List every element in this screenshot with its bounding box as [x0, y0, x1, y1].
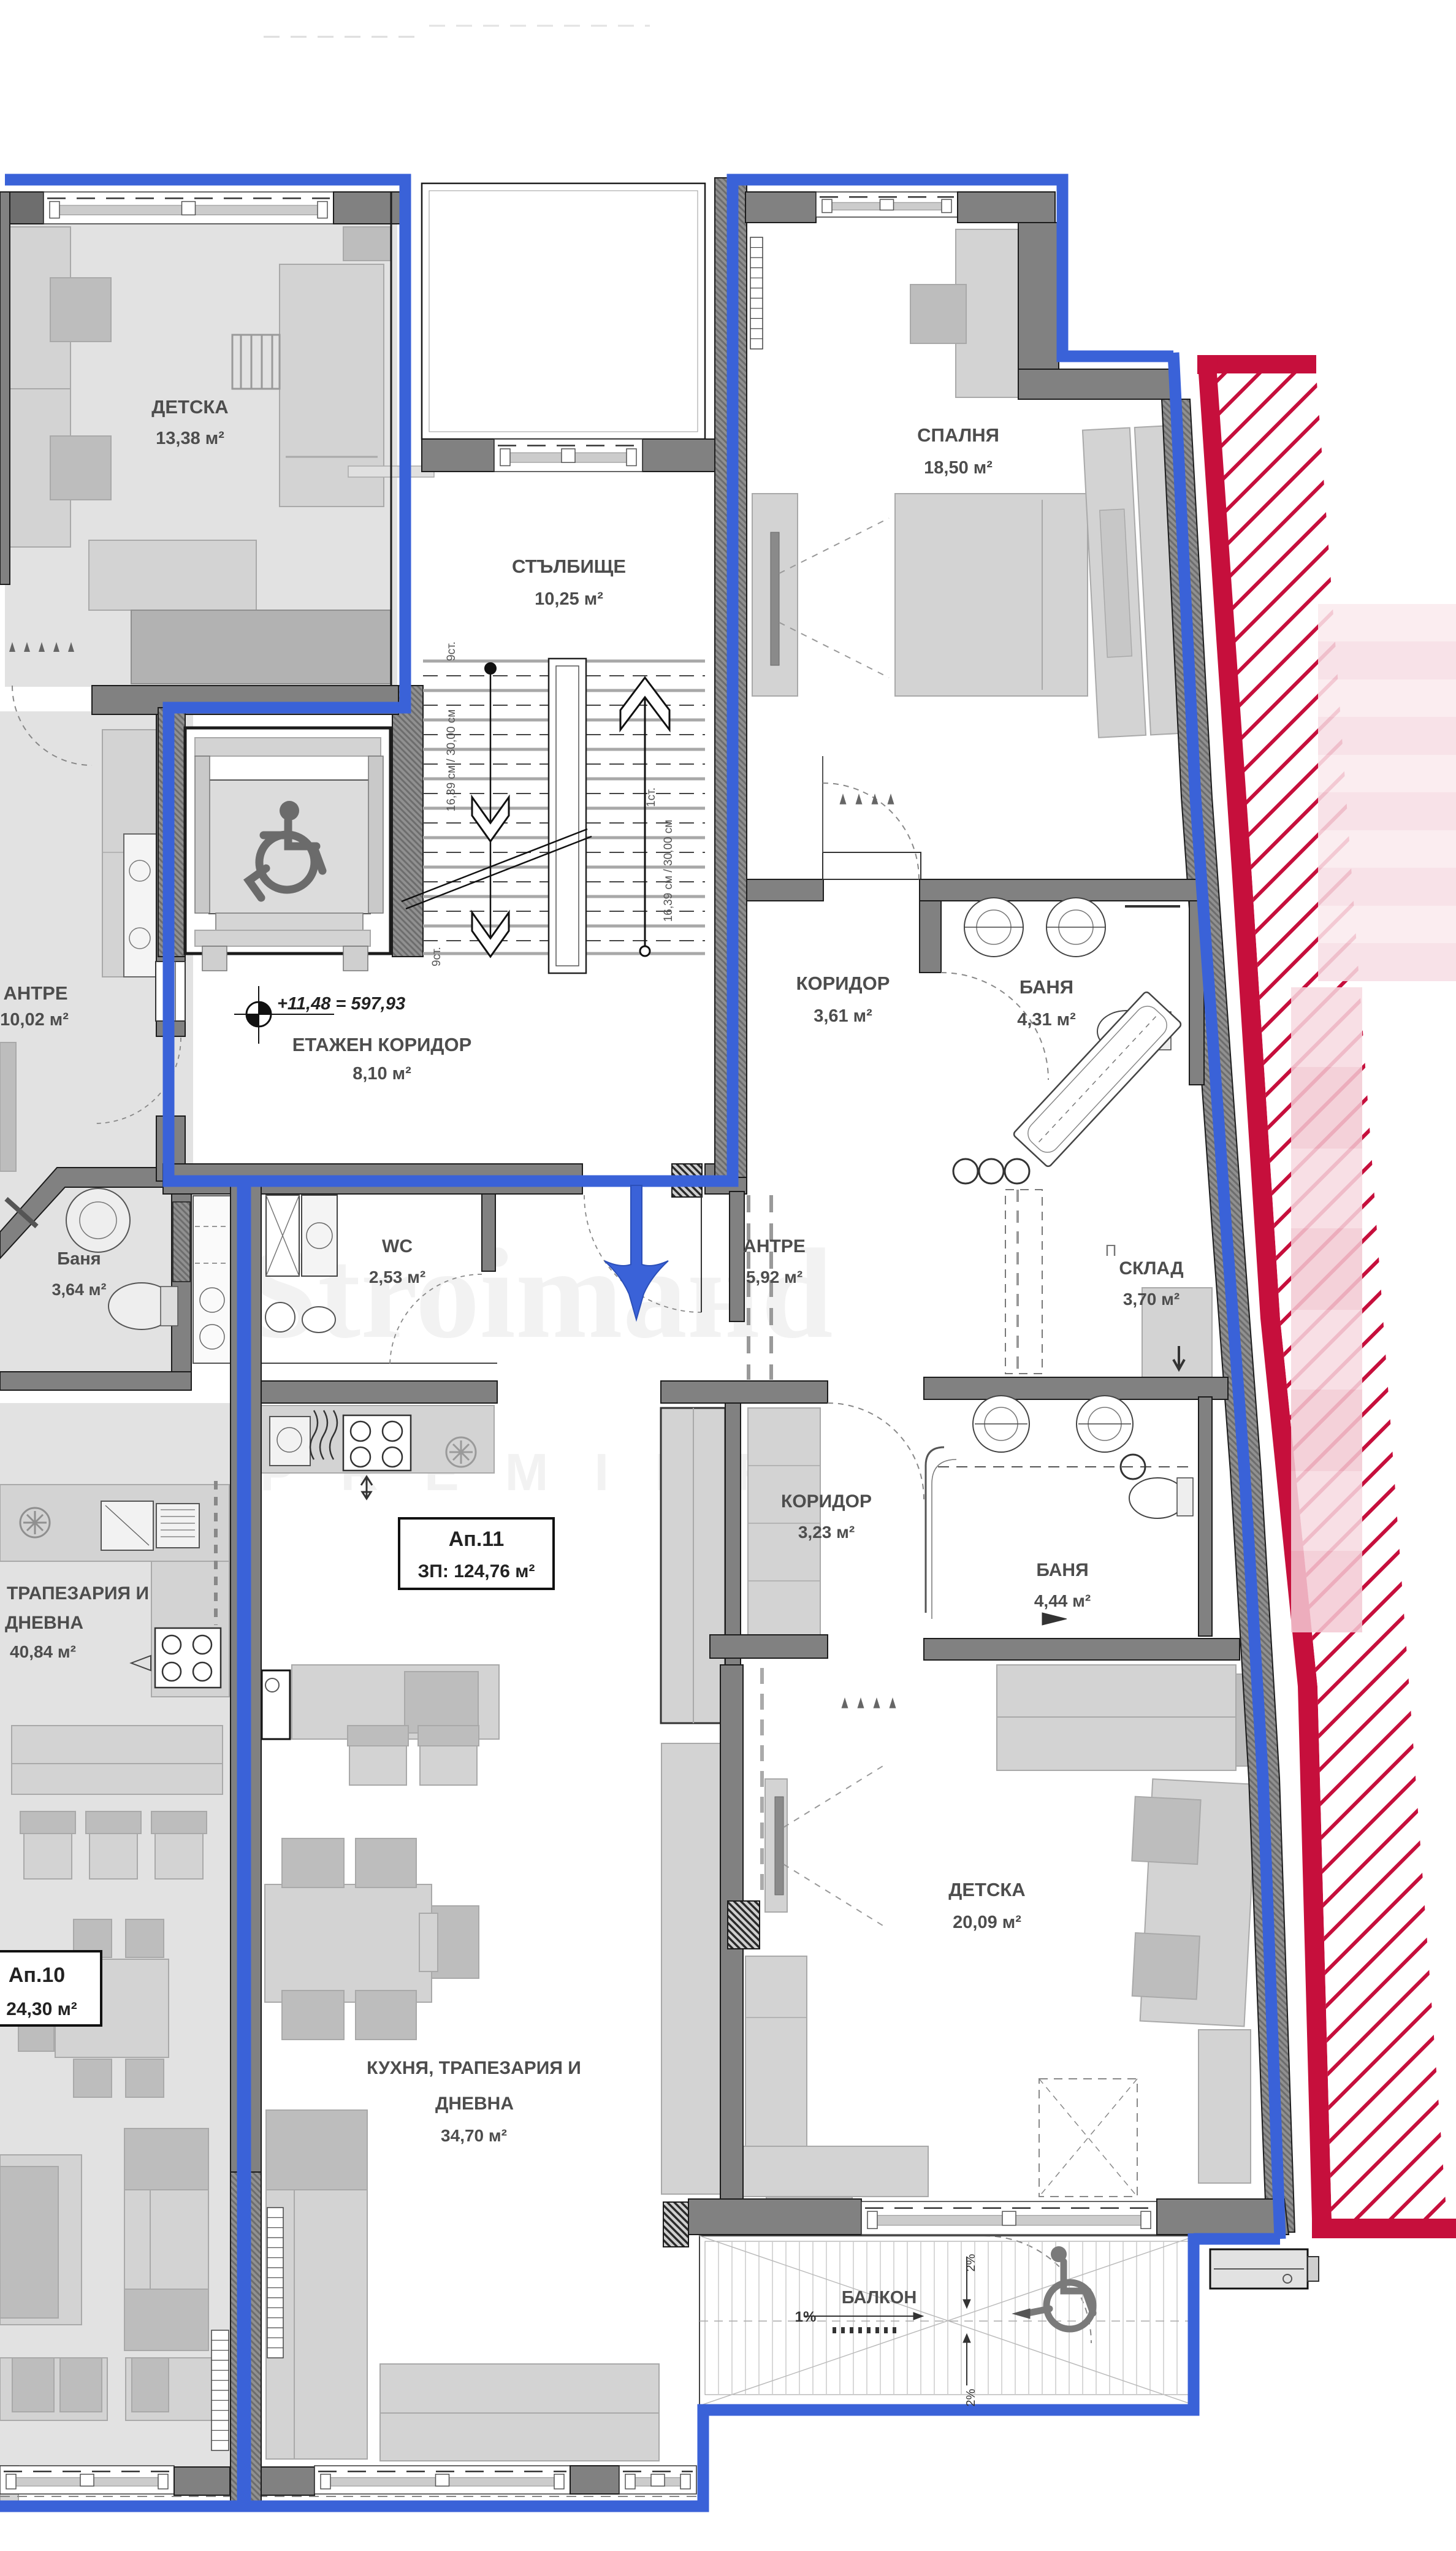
svg-text:Баня: Баня — [57, 1249, 101, 1269]
svg-text:ДНЕВНА: ДНЕВНА — [435, 2094, 514, 2114]
svg-text:СТЪЛБИЩЕ: СТЪЛБИЩЕ — [512, 556, 626, 577]
svg-text:10,02 м²: 10,02 м² — [0, 1010, 69, 1030]
svg-text:2%: 2% — [964, 2388, 978, 2406]
svg-text:СКЛАД: СКЛАД — [1119, 1258, 1183, 1279]
svg-text:9ст.: 9ст. — [430, 947, 443, 966]
svg-text:2,53 м²: 2,53 м² — [369, 1268, 425, 1287]
svg-text:1%: 1% — [795, 2309, 817, 2325]
svg-text:4,44 м²: 4,44 м² — [1034, 1591, 1091, 1610]
svg-text:БАЛКОН: БАЛКОН — [842, 2288, 917, 2308]
svg-text:ДНЕВНА: ДНЕВНА — [5, 1613, 83, 1633]
svg-text:Ап.10: Ап.10 — [9, 1964, 65, 1987]
svg-text:2%: 2% — [964, 2254, 978, 2271]
svg-text:БАНЯ: БАНЯ — [1036, 1560, 1088, 1580]
svg-text:5,92 м²: 5,92 м² — [746, 1268, 802, 1287]
svg-text:4,31 м²: 4,31 м² — [1017, 1010, 1076, 1030]
svg-text:+11,48 = 597,93: +11,48 = 597,93 — [277, 994, 405, 1014]
svg-text:СПАЛНЯ: СПАЛНЯ — [917, 424, 999, 446]
svg-text:Ап.11: Ап.11 — [449, 1528, 504, 1551]
svg-text:3,23 м²: 3,23 м² — [798, 1523, 855, 1542]
svg-text:ДЕТСКА: ДЕТСКА — [151, 396, 228, 418]
svg-text:24,30 м²: 24,30 м² — [6, 1999, 77, 2019]
svg-text:АНТРЕ: АНТРЕ — [743, 1236, 806, 1256]
svg-text:3,64 м²: 3,64 м² — [51, 1280, 106, 1299]
svg-text:ЗП: 124,76 м²: ЗП: 124,76 м² — [418, 1561, 535, 1581]
svg-text:13,38 м²: 13,38 м² — [156, 429, 224, 448]
svg-text:40,84 м²: 40,84 м² — [10, 1642, 76, 1661]
svg-text:10,25 м²: 10,25 м² — [535, 589, 603, 609]
svg-text:1ст.: 1ст. — [645, 787, 658, 807]
svg-text:П: П — [1105, 1241, 1117, 1260]
svg-text:БАНЯ: БАНЯ — [1020, 976, 1073, 998]
svg-text:16,39 см / 30,00 см: 16,39 см / 30,00 см — [445, 709, 458, 812]
svg-text:18,50 м²: 18,50 м² — [924, 458, 993, 478]
svg-text:АНТРЕ: АНТРЕ — [3, 982, 67, 1004]
svg-text:8,10 м²: 8,10 м² — [353, 1064, 411, 1084]
svg-text:КОРИДОР: КОРИДОР — [781, 1491, 872, 1512]
svg-text:20,09 м²: 20,09 м² — [953, 1913, 1021, 1932]
svg-text:КОРИДОР: КОРИДОР — [796, 973, 890, 994]
svg-text:ЕТАЖЕН КОРИДОР: ЕТАЖЕН КОРИДОР — [292, 1034, 472, 1055]
svg-text:КУХНЯ, ТРАПЕЗАРИЯ И: КУХНЯ, ТРАПЕЗАРИЯ И — [367, 2058, 581, 2078]
svg-text:9ст.: 9ст. — [445, 641, 458, 661]
svg-text:WC: WC — [382, 1236, 413, 1256]
svg-text:16,39 см / 30,00 см: 16,39 см / 30,00 см — [662, 820, 675, 922]
svg-text:34,70 м²: 34,70 м² — [441, 2126, 507, 2145]
svg-text:ДЕТСКА: ДЕТСКА — [948, 1879, 1025, 1900]
svg-text:ТРАПЕЗАРИЯ И: ТРАПЕЗАРИЯ И — [7, 1583, 149, 1604]
svg-text:3,70 м²: 3,70 м² — [1123, 1290, 1180, 1309]
svg-text:3,61 м²: 3,61 м² — [814, 1006, 872, 1026]
